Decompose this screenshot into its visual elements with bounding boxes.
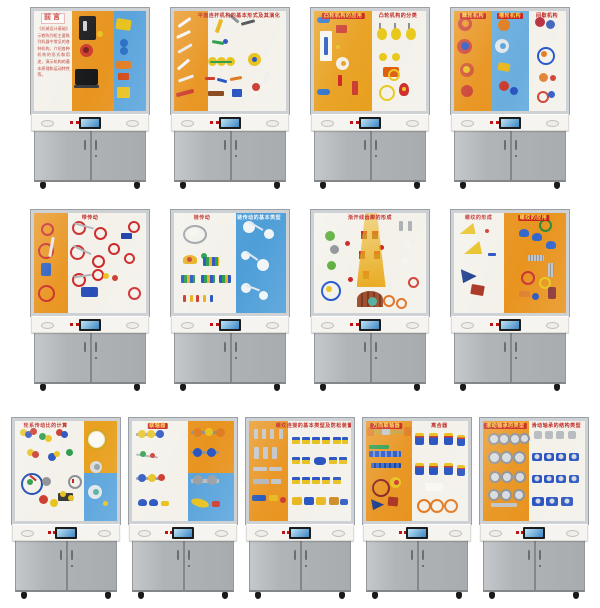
- decor-layer: [366, 421, 468, 521]
- decor-shape: [461, 269, 477, 283]
- decor-shape: [149, 499, 158, 506]
- display-case: 螺纹连接的基本类型及防松装置: [246, 418, 354, 524]
- decor-shape: [138, 474, 146, 482]
- decor-shape: [210, 295, 213, 302]
- door-handle-left: [224, 140, 226, 150]
- decor-shape: [259, 291, 268, 300]
- keyhole: [305, 565, 307, 567]
- decor-shape: [316, 497, 326, 505]
- keyhole: [539, 565, 541, 567]
- cabinet-base: [454, 131, 566, 182]
- door-handle-right: [235, 140, 237, 150]
- decor-shape: [532, 475, 542, 483]
- decor-layer: [15, 421, 117, 521]
- door-seam: [417, 541, 419, 590]
- decor-shape: [262, 429, 266, 439]
- decor-shape: [388, 497, 399, 507]
- decor-shape: [325, 231, 335, 241]
- door-handle-right: [305, 550, 307, 560]
- control-screen: [406, 527, 428, 539]
- door-handle-left: [177, 550, 179, 560]
- decor-shape: [340, 499, 348, 505]
- decor-shape: [500, 451, 513, 464]
- decor-shape: [488, 253, 496, 256]
- decor-shape: [369, 445, 389, 449]
- panel-title-banner: 棘轮机构: [460, 13, 486, 19]
- decor-shape: [444, 463, 453, 475]
- decor-shape: [324, 37, 328, 55]
- keyhole: [375, 155, 377, 157]
- decor-shape: [39, 495, 48, 504]
- decor-shape: [196, 295, 199, 302]
- cabinet-base: [483, 541, 585, 592]
- cabinet-base: [15, 541, 117, 592]
- intro-text: 《机械设计基础》示教陈列柜主要陈列机器中常见的各种机构，介绍各种机构的形式和用途…: [37, 26, 69, 104]
- decor-shape: [178, 74, 194, 82]
- decor-shape: [83, 21, 87, 31]
- keyhole: [235, 357, 237, 359]
- decor-shape: [569, 475, 579, 483]
- decor-shape: [546, 20, 555, 29]
- decor-shape: [568, 431, 576, 439]
- decor-shape: [112, 275, 118, 281]
- decor-shape: [128, 287, 141, 300]
- caster-row: [451, 182, 569, 190]
- control-screen: [55, 527, 77, 539]
- control-console: [363, 524, 471, 541]
- decor-shape: [60, 491, 66, 497]
- decor-shape: [41, 263, 51, 276]
- decor-shape: [193, 448, 202, 457]
- decor-shape: [322, 437, 330, 444]
- vent-oval-right: [406, 120, 419, 127]
- panel-title-banner: 前言: [41, 13, 65, 24]
- decor-shape: [408, 277, 419, 288]
- caster-wheel: [372, 592, 378, 599]
- indicator-button: [490, 323, 493, 326]
- decor-shape: [61, 431, 68, 438]
- decor-shape: [241, 19, 255, 26]
- decor-shape: [336, 45, 340, 49]
- decor-shape: [417, 499, 431, 513]
- vent-oval-left: [181, 322, 194, 329]
- decor-shape: [513, 489, 525, 501]
- decor-shape: [292, 477, 300, 484]
- keyhole: [422, 565, 424, 567]
- decor-shape: [401, 257, 409, 265]
- decor-shape: [415, 433, 424, 445]
- caster-wheel: [21, 592, 27, 599]
- display-cabinet-r2c1: 带传动: [31, 210, 149, 392]
- decor-shape: [532, 453, 542, 461]
- panel-title-banner: 螺纹连接的基本类型及防松装置: [276, 423, 353, 429]
- door-seam: [534, 541, 536, 590]
- decor-shape: [41, 223, 54, 236]
- caster-wheel: [414, 384, 420, 391]
- decor-shape: [322, 477, 330, 484]
- decor-shape: [93, 489, 99, 495]
- decor-shape: [219, 275, 231, 283]
- decor-shape: [302, 457, 310, 464]
- decor-shape: [500, 489, 512, 501]
- vent-oval-left: [372, 530, 385, 537]
- decor-shape: [556, 431, 564, 439]
- caster-wheel: [489, 592, 495, 599]
- decor-shape: [117, 87, 130, 98]
- vent-oval-left: [489, 530, 502, 537]
- door-seam: [510, 131, 512, 180]
- decor-shape: [548, 263, 554, 277]
- caster-wheel: [573, 592, 579, 599]
- caster-row: [31, 182, 149, 190]
- decor-shape: [72, 479, 74, 483]
- door-handle-left: [84, 140, 86, 150]
- decor-shape: [377, 28, 387, 40]
- control-screen: [79, 117, 101, 129]
- decor-shape: [193, 475, 203, 485]
- decor-shape: [279, 429, 283, 439]
- decor-shape: [498, 19, 510, 31]
- control-screen: [79, 319, 101, 331]
- decor-shape: [214, 19, 223, 34]
- control-screen: [219, 117, 241, 129]
- control-screen: [359, 117, 381, 129]
- door-handle-left: [504, 140, 506, 150]
- decor-shape: [369, 451, 401, 457]
- control-console: [171, 316, 289, 333]
- decor-shape: [510, 87, 518, 95]
- door-handle-left: [364, 140, 366, 150]
- caster-wheel: [460, 182, 466, 189]
- decor-shape: [388, 69, 400, 81]
- decor-shape: [216, 428, 225, 437]
- caster-wheel: [456, 592, 462, 599]
- decor-shape: [444, 499, 458, 513]
- keyhole: [515, 357, 517, 359]
- decor-shape: [176, 30, 191, 39]
- decor-shape: [342, 437, 348, 444]
- decor-shape: [120, 39, 128, 47]
- decor-shape: [383, 295, 395, 307]
- decor-shape: [203, 257, 219, 266]
- decor-shape: [148, 474, 156, 482]
- decor-layer: [314, 11, 426, 111]
- decor-layer: [132, 421, 234, 521]
- door-seam: [510, 333, 512, 382]
- door-handle-right: [375, 342, 377, 352]
- decor-shape: [461, 42, 469, 50]
- vent-oval-right: [566, 530, 579, 537]
- display-case: 螺纹的形成螺纹的应用: [451, 210, 569, 316]
- display-case: 联轴器: [129, 418, 237, 524]
- door-seam: [230, 131, 232, 180]
- decor-shape: [269, 467, 282, 471]
- vent-oval-right: [332, 530, 345, 537]
- caster-wheel: [320, 384, 326, 391]
- caster-row: [31, 384, 149, 392]
- keyhole: [188, 565, 190, 567]
- door-handle-right: [515, 140, 517, 150]
- indicator-button: [350, 323, 353, 326]
- decor-shape: [544, 475, 554, 483]
- decor-shape: [269, 495, 278, 501]
- decor-layer: [454, 213, 566, 313]
- decor-shape: [252, 495, 266, 501]
- door-handle-left: [504, 342, 506, 352]
- decor-shape: [203, 295, 206, 302]
- decor-shape: [205, 428, 213, 436]
- panel-title-banner: 平面连杆机构的基本形式及其演化: [198, 13, 281, 19]
- vent-oval-right: [546, 322, 559, 329]
- indicator-button: [70, 121, 73, 124]
- door-handle-right: [539, 550, 541, 560]
- door-handle-right: [71, 550, 73, 560]
- vent-oval-left: [321, 322, 334, 329]
- vent-oval-left: [461, 120, 474, 127]
- display-cabinet-r1c1: 前言《机械设计基础》示教陈列柜主要陈列机器中常见的各种机构，介绍各种机构的形式和…: [31, 8, 149, 190]
- decor-shape: [138, 499, 147, 506]
- decor-shape: [379, 85, 395, 101]
- panel-title-banner: 轮系传动比的计算: [24, 423, 68, 429]
- decor-shape: [317, 89, 330, 95]
- decor-shape: [223, 39, 228, 44]
- decor-shape: [528, 255, 544, 261]
- caster-wheel: [255, 592, 261, 599]
- decor-shape: [371, 463, 401, 468]
- decor-shape: [177, 59, 190, 71]
- cabinet-base: [34, 333, 146, 384]
- decor-shape: [345, 241, 350, 246]
- caster-row: [451, 384, 569, 392]
- decor-shape: [66, 449, 73, 456]
- decor-layer: [174, 11, 286, 111]
- control-screen: [289, 527, 311, 539]
- decor-shape: [550, 75, 556, 81]
- door-seam: [370, 131, 372, 180]
- caster-wheel: [180, 384, 186, 391]
- panel-title-banner: 螺纹的应用: [518, 215, 550, 221]
- decor-shape: [193, 428, 202, 437]
- display-case: 轮系传动比的计算: [12, 418, 120, 524]
- display-case: 带传动: [31, 210, 149, 316]
- decor-shape: [74, 85, 99, 88]
- decor-shape: [548, 287, 556, 299]
- door-handle-right: [375, 140, 377, 150]
- vent-oval-right: [546, 120, 559, 127]
- decor-shape: [128, 221, 140, 233]
- display-case: 链传动链传动的基本类型: [171, 210, 289, 316]
- decor-shape: [262, 71, 269, 84]
- panel-title-banner: 渐开线齿廓的形成: [348, 215, 392, 221]
- display-case: 万向联轴器离合器: [363, 418, 471, 524]
- decor-shape: [329, 497, 339, 505]
- decor-shape: [519, 291, 530, 297]
- decor-shape: [208, 91, 224, 96]
- decor-shape: [444, 433, 453, 445]
- decor-shape: [280, 497, 286, 503]
- panel-title-banner: 万向联轴器: [371, 423, 403, 429]
- decor-shape: [464, 241, 482, 254]
- decor-shape: [178, 17, 192, 28]
- indicator-button: [210, 323, 213, 326]
- display-case: 平面连杆机构的基本形式及其演化: [171, 8, 289, 114]
- cabinet-base: [132, 541, 234, 592]
- decor-shape: [253, 479, 269, 484]
- decor-shape: [519, 229, 529, 237]
- door-seam: [370, 333, 372, 382]
- decor-shape: [513, 451, 526, 464]
- vent-oval-left: [41, 120, 54, 127]
- decor-layer: [249, 421, 351, 521]
- control-screen: [499, 319, 521, 331]
- control-console: [480, 524, 588, 541]
- decor-shape: [103, 501, 108, 506]
- vent-oval-left: [255, 530, 268, 537]
- display-cabinet-r1c3: 凸轮机构的应用凸轮机构的分类: [311, 8, 429, 190]
- caster-row: [171, 384, 289, 392]
- indicator-button: [70, 323, 73, 326]
- display-case: 棘轮机构槽轮机构间歇机构: [451, 8, 569, 114]
- door-handle-right: [422, 550, 424, 560]
- decor-shape: [497, 62, 510, 72]
- cabinet-base: [249, 541, 351, 592]
- vent-oval-left: [41, 322, 54, 329]
- display-cabinet-r1c4: 棘轮机构槽轮机构间歇机构: [451, 8, 569, 190]
- door-handle-right: [95, 140, 97, 150]
- door-handle-left: [224, 342, 226, 352]
- panel-title-banner: 滑动轴承的结构类型: [532, 423, 582, 429]
- door-seam: [66, 541, 68, 590]
- keyhole: [235, 155, 237, 157]
- vent-oval-right: [266, 322, 279, 329]
- decor-shape: [68, 495, 74, 501]
- decor-shape: [544, 453, 554, 461]
- decor-shape: [253, 467, 267, 471]
- decor-layer: [483, 421, 585, 521]
- control-console: [129, 524, 237, 541]
- vent-oval-right: [215, 530, 228, 537]
- display-cabinet-r3c5: 滚动轴承的类型滑动轴承的结构类型: [480, 418, 588, 600]
- door-handle-left: [84, 342, 86, 352]
- door-seam: [90, 131, 92, 180]
- decor-shape: [54, 451, 60, 457]
- decor-shape: [569, 453, 579, 461]
- decor-shape: [264, 229, 274, 239]
- decor-shape: [470, 284, 485, 296]
- control-console: [171, 114, 289, 131]
- decor-shape: [532, 497, 544, 506]
- panel-title-banner: 联轴器: [147, 423, 168, 429]
- vent-oval-right: [406, 322, 419, 329]
- decor-shape: [94, 464, 100, 470]
- decor-shape: [292, 437, 300, 444]
- cabinet-base: [314, 131, 426, 182]
- door-seam: [183, 541, 185, 590]
- decor-shape: [333, 477, 341, 484]
- decor-shape: [302, 477, 310, 484]
- keyhole: [95, 155, 97, 157]
- decor-shape: [514, 471, 526, 483]
- door-handle-right: [515, 342, 517, 352]
- decor-shape: [457, 465, 465, 476]
- decor-shape: [491, 503, 517, 507]
- control-console: [311, 114, 429, 131]
- control-screen: [172, 527, 194, 539]
- vent-oval-left: [181, 120, 194, 127]
- vent-oval-left: [21, 530, 34, 537]
- caster-row: [129, 592, 237, 600]
- decor-shape: [462, 20, 469, 27]
- decor-shape: [230, 76, 242, 81]
- panel-title-banner: 槽轮机构: [497, 13, 523, 19]
- decor-layer: [34, 213, 146, 313]
- decor-shape: [271, 479, 281, 484]
- decor-shape: [121, 233, 132, 239]
- decor-shape: [118, 73, 129, 80]
- decor-shape: [545, 431, 553, 439]
- decor-shape: [86, 429, 107, 450]
- door-handle-left: [60, 550, 62, 560]
- decor-shape: [97, 31, 103, 37]
- control-screen: [499, 117, 521, 129]
- caster-wheel: [40, 182, 46, 189]
- decor-shape: [292, 497, 302, 505]
- caster-row: [171, 182, 289, 190]
- decor-shape: [404, 427, 411, 436]
- caster-row: [246, 592, 354, 600]
- control-screen: [359, 319, 381, 331]
- display-case: 滚动轴承的类型滑动轴承的结构类型: [480, 418, 588, 524]
- display-cabinet-r1c2: 平面连杆机构的基本形式及其演化: [171, 8, 289, 190]
- caster-wheel: [134, 182, 140, 189]
- decor-shape: [485, 229, 489, 233]
- display-cabinet-r2c2: 链传动链传动的基本类型: [171, 210, 289, 392]
- decor-shape: [333, 437, 341, 444]
- decor-shape: [190, 497, 209, 509]
- decor-shape: [124, 253, 135, 264]
- decor-shape: [500, 43, 506, 49]
- cabinet-base: [34, 131, 146, 182]
- decor-shape: [156, 430, 164, 438]
- decor-shape: [254, 429, 258, 439]
- decor-shape: [329, 457, 337, 464]
- decor-shape: [232, 89, 242, 97]
- door-handle-left: [364, 342, 366, 352]
- caster-wheel: [180, 182, 186, 189]
- vent-oval-right: [126, 120, 139, 127]
- decor-shape: [534, 431, 542, 439]
- decor-shape: [546, 497, 558, 506]
- caster-wheel: [554, 182, 560, 189]
- decor-shape: [205, 77, 215, 80]
- door-handle-left: [411, 550, 413, 560]
- decor-shape: [94, 227, 107, 240]
- decor-shape: [392, 53, 400, 61]
- panel-title-banner: 螺纹的形成: [465, 215, 493, 221]
- decor-shape: [270, 429, 274, 439]
- decor-shape: [176, 89, 194, 98]
- display-case: 凸轮机构的应用凸轮机构的分类: [311, 8, 429, 114]
- control-console: [311, 316, 429, 333]
- decor-shape: [368, 297, 377, 306]
- caster-wheel: [414, 182, 420, 189]
- decor-shape: [103, 273, 109, 279]
- decor-shape: [207, 475, 217, 485]
- display-cabinet-r3c4: 万向联轴器离合器: [363, 418, 471, 600]
- decor-shape: [42, 477, 51, 486]
- panel-title-banner: 链传动的基本类型: [237, 215, 281, 221]
- vent-oval-right: [266, 120, 279, 127]
